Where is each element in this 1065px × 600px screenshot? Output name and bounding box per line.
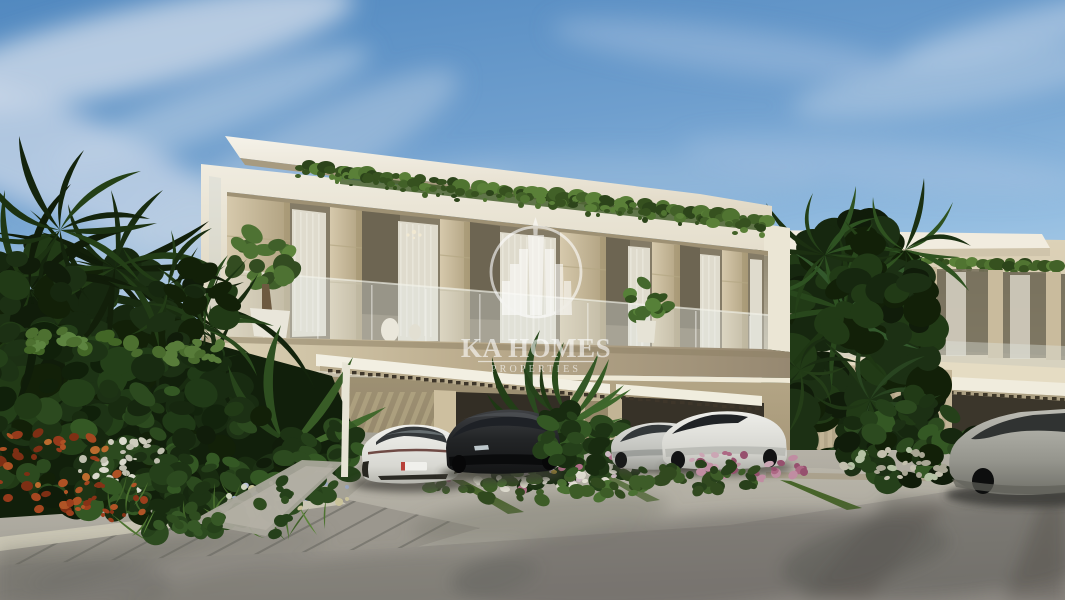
- svg-text:KA HOMES: KA HOMES: [461, 333, 611, 363]
- svg-text:PROPERTIES: PROPERTIES: [491, 364, 581, 375]
